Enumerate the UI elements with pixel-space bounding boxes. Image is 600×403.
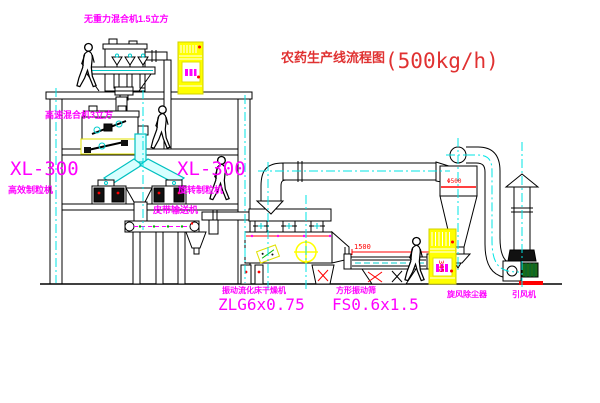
label-fan: 引风机 <box>512 291 536 299</box>
label-xl300-left: XL-300 <box>10 160 79 179</box>
dryer-pedestal <box>312 265 334 284</box>
dryer-hood <box>249 209 331 221</box>
label-sieve-name: 方形振动筛 <box>336 287 376 295</box>
label-xl300-mid: XL-300 <box>177 160 246 179</box>
label-dryer-name: 振动流化床干燥机 <box>222 287 286 295</box>
discharge-column <box>134 202 147 221</box>
dim-sieve-length: 1500 <box>354 244 371 251</box>
exhaust-duct <box>257 161 452 214</box>
dryer-body <box>245 232 332 263</box>
person-top-floor <box>77 44 96 87</box>
mixer-yellow-box <box>81 139 138 154</box>
belt-conveyor <box>125 221 206 284</box>
dim-cyclone: Φ500 <box>447 179 461 185</box>
belt-hopper <box>186 232 206 248</box>
lower-slab <box>62 204 238 210</box>
label-dryer-model: ZLG6x0.75 <box>218 297 305 313</box>
label-granulator-mid: 旋转制粒机 <box>178 186 223 195</box>
control-cabinet-2 <box>429 229 456 284</box>
dryer-leg <box>255 265 263 284</box>
title-chinese: 农药生产线流程图 <box>281 50 385 65</box>
fluid-bed-dryer <box>241 209 349 284</box>
label-belt-conveyor: 皮带输送机 <box>153 206 198 215</box>
dryer-leg <box>241 265 251 284</box>
flow-diagram-canvas: 农药生产线流程图(500kg/h) 无重力混合机1.5立方 高速混合机3立方 X… <box>0 0 600 403</box>
title-capacity: (500kg/h) <box>385 49 499 73</box>
fan-base <box>519 281 543 285</box>
dim-sieve-height: 345 <box>437 260 444 273</box>
label-cyclone: 旋风除尘器 <box>447 291 487 299</box>
discharge-funnel <box>126 188 152 202</box>
label-high-speed-mixer: 高速混合机3立方 <box>45 111 113 120</box>
label-gravity-free-mixer: 无重力混合机1.5立方 <box>84 15 169 24</box>
duct-elbow <box>261 163 286 201</box>
label-sieve-model: FS0.6x1.5 <box>332 297 419 313</box>
diagram-title: 农药生产线流程图(500kg/h) <box>281 47 499 73</box>
induced-draft-fan <box>503 261 543 285</box>
cabinet1-nameplate <box>185 69 197 76</box>
top-slab <box>46 92 252 99</box>
dryer-ports <box>253 221 325 232</box>
label-granulator-left: 高效制粒机 <box>8 186 53 195</box>
control-cabinet-1 <box>178 42 203 94</box>
vibrating-sieve <box>344 249 443 284</box>
